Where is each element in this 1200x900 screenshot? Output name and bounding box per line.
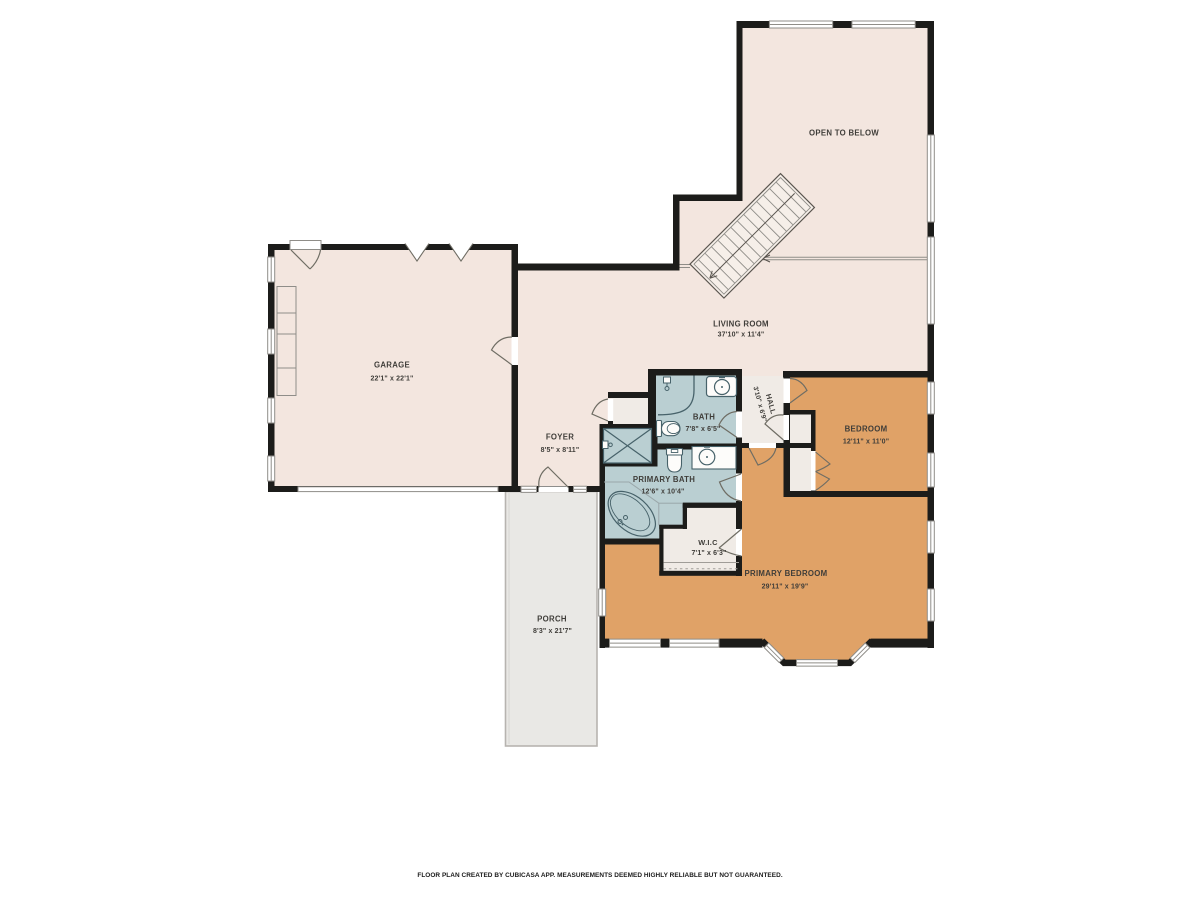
svg-text:FOYER: FOYER xyxy=(546,433,574,442)
svg-text:22'1" x 22'1": 22'1" x 22'1" xyxy=(370,376,413,383)
svg-text:37'10" x 11'4": 37'10" x 11'4" xyxy=(718,332,765,339)
svg-text:PRIMARY BEDROOM: PRIMARY BEDROOM xyxy=(745,569,828,578)
svg-text:W.I.C: W.I.C xyxy=(698,538,718,547)
svg-text:GARAGE: GARAGE xyxy=(374,361,410,370)
svg-text:FLOOR PLAN CREATED BY CUBICASA: FLOOR PLAN CREATED BY CUBICASA APP. MEAS… xyxy=(417,872,782,879)
svg-text:BATH: BATH xyxy=(693,413,715,422)
svg-text:7'1" x 6'3": 7'1" x 6'3" xyxy=(692,550,727,557)
svg-text:LIVING ROOM: LIVING ROOM xyxy=(713,320,769,329)
svg-text:8'3" x 21'7": 8'3" x 21'7" xyxy=(533,628,572,635)
svg-text:12'6" x 10'4": 12'6" x 10'4" xyxy=(641,489,684,496)
svg-text:OPEN TO BELOW: OPEN TO BELOW xyxy=(809,129,879,138)
svg-text:29'11" x 19'9": 29'11" x 19'9" xyxy=(762,584,809,591)
svg-text:8'5" x 8'11": 8'5" x 8'11" xyxy=(541,447,580,454)
svg-text:7'8" x 6'5": 7'8" x 6'5" xyxy=(686,426,721,433)
svg-text:PRIMARY BATH: PRIMARY BATH xyxy=(633,475,695,484)
svg-text:PORCH: PORCH xyxy=(537,615,567,624)
svg-text:BEDROOM: BEDROOM xyxy=(845,425,888,434)
svg-text:12'11" x 11'0": 12'11" x 11'0" xyxy=(843,439,889,446)
